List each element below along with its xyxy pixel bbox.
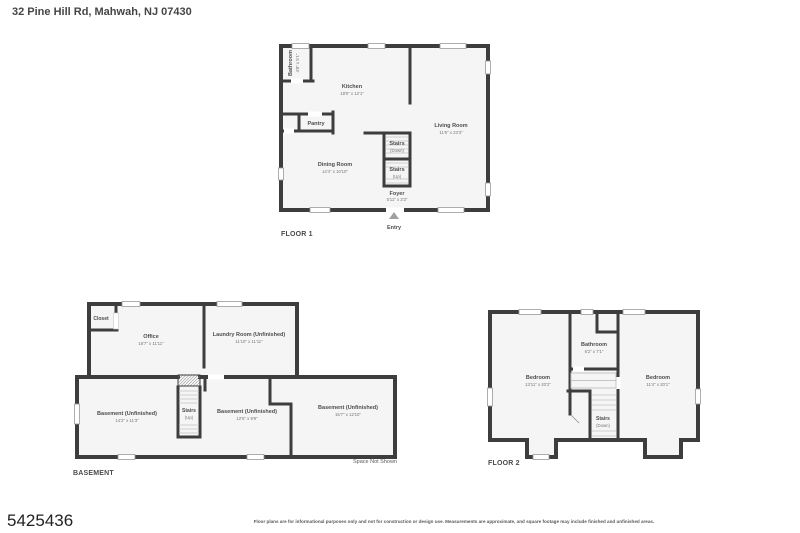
b-mid-dims: 12'5" x 9'9" (236, 416, 258, 421)
space-not-shown-note: Space Not Shown (300, 459, 397, 465)
f1-bathroom-dims: 4'8" x 5'1" (295, 53, 300, 72)
entry-door-gap (386, 208, 404, 213)
basement-plan: Closet Office 16'7" x 11'11" Laundry Roo… (65, 295, 410, 480)
floor2-right-alcove (645, 440, 681, 457)
bathroom-door-gap (291, 79, 303, 84)
entry-arrow-icon (389, 212, 399, 219)
f1-living-name: Living Room (434, 123, 467, 129)
f1-foyer-dims: 5'11" x 3'3" (387, 197, 408, 202)
b-stairs-dir: (Up) (185, 415, 194, 420)
f1-stairs-up-name: Stairs (389, 167, 404, 173)
b-mid-name: Basement (Unfinished) (217, 409, 277, 415)
floor1-plan: Bathroom 4'8" x 5'1" Kitchen 18'0" x 12'… (270, 38, 510, 238)
laundry-door-gap (208, 375, 224, 380)
f1-stairs-up-dir: (Up) (393, 174, 402, 179)
f2-stairs-name: Stairs (596, 416, 610, 422)
b-right-dims: 15'7" x 12'10" (335, 412, 361, 417)
f2-bedroom-left-dims: 13'11" x 20'2" (525, 382, 551, 387)
pantry-door-gap (308, 112, 322, 117)
f1-dining-name: Dining Room (318, 162, 352, 168)
basement-upper-floor-area (89, 304, 297, 377)
closet-door-gap (284, 129, 294, 134)
f2-bathroom-dims: 6'2" x 7'1" (585, 349, 604, 354)
b-stairs-name: Stairs (182, 408, 196, 414)
f1-dining-dims: 14'4" x 10'10" (322, 169, 348, 174)
f2-bathroom-name: Bathroom (581, 342, 607, 348)
f1-stairs-down-dir: (Down) (390, 148, 404, 153)
f1-entry-label: Entry (387, 225, 402, 231)
f2-bedroom-right-dims: 11'4" x 20'1" (646, 382, 670, 387)
b-laundry-name: Laundry Room (Unfinished) (213, 332, 286, 338)
b-left-dims: 14'2" x 11'3" (115, 418, 139, 423)
f2-bedroom-right-name: Bedroom (646, 375, 670, 381)
f1-pantry-name: Pantry (307, 121, 325, 127)
b-left-name: Basement (Unfinished) (97, 411, 157, 417)
page-title: 32 Pine Hill Rd, Mahwah, NJ 07430 (12, 6, 192, 18)
f2-stairs-dir: (Down) (596, 423, 610, 428)
disclaimer-text: Floor plans are for informational purpos… (180, 519, 728, 524)
f1-kitchen-name: Kitchen (342, 84, 363, 90)
listing-id: 5425436 (7, 511, 73, 531)
b-right-name: Basement (Unfinished) (318, 405, 378, 411)
closet-door (114, 313, 119, 329)
f1-living-dims: 11'6" x 23'3" (439, 130, 463, 135)
b-closet-name: Closet (93, 316, 109, 322)
f2-bathroom-door-gap (573, 367, 584, 372)
f2-bedroom-left-name: Bedroom (526, 375, 550, 381)
f1-kitchen-dims: 18'0" x 12'1" (340, 91, 364, 96)
basement-section-label: BASEMENT (73, 470, 114, 477)
b-office-dims: 16'7" x 11'11" (138, 341, 164, 346)
floorplan-page: 32 Pine Hill Rd, Mahwah, NJ 07430 Bathro… (0, 0, 800, 533)
floor1-section-label: FLOOR 1 (281, 231, 313, 238)
stair-hatch (178, 375, 200, 386)
floor2-plan: Bedroom 13'11" x 20'2" Bedroom 11'4" x 2… (478, 300, 710, 475)
f1-stairs-down-name: Stairs (389, 141, 404, 147)
floor2-section-label: FLOOR 2 (488, 460, 520, 467)
b-laundry-dims: 11'10" x 11'11" (235, 339, 263, 344)
f1-bathroom-name: Bathroom (288, 50, 294, 76)
b-office-name: Office (143, 334, 159, 340)
